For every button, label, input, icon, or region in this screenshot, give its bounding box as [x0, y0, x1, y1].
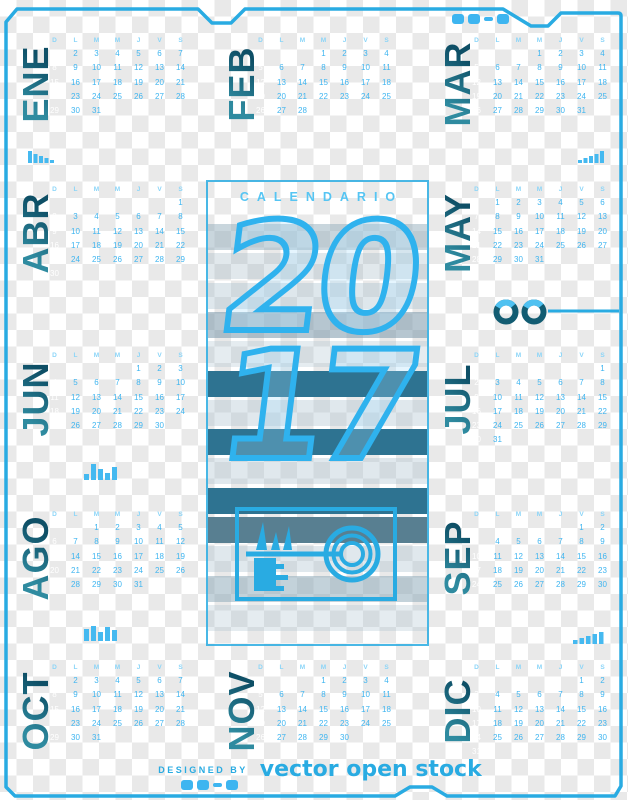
day-cell	[107, 362, 128, 376]
day-cell	[65, 433, 86, 447]
day-cell: 1	[313, 47, 334, 61]
day-cell: 18	[107, 76, 128, 90]
month-grid: DLMMJVS123456789101112131415161718192021…	[44, 661, 191, 760]
day-cell: 3	[170, 362, 191, 376]
day-cell	[170, 592, 191, 606]
day-cell: 21	[170, 703, 191, 717]
day-cell: 16	[592, 703, 613, 717]
day-cell: 19	[128, 703, 149, 717]
day-header: V	[149, 34, 170, 47]
day-cell: 28	[65, 578, 86, 592]
month-grid: DLMMJVS123456789101112131415161718192021…	[44, 34, 191, 133]
day-header: S	[592, 183, 613, 196]
day-cell: 21	[550, 564, 571, 578]
day-cell	[487, 267, 508, 281]
day-cell: 22	[44, 717, 65, 731]
day-cell: 18	[508, 405, 529, 419]
day-cell	[107, 118, 128, 132]
day-cell: 21	[466, 239, 487, 253]
day-cell: 18	[149, 550, 170, 564]
day-cell: 30	[44, 267, 65, 281]
day-cell: 6	[128, 210, 149, 224]
day-cell	[128, 196, 149, 210]
day-cell: 14	[292, 76, 313, 90]
day-cell: 2	[65, 674, 86, 688]
day-cell: 30	[107, 578, 128, 592]
day-cell: 12	[128, 688, 149, 702]
day-cell	[107, 196, 128, 210]
day-header: D	[44, 508, 65, 521]
day-cell: 1	[44, 674, 65, 688]
day-cell: 10	[86, 688, 107, 702]
day-header: D	[466, 183, 487, 196]
day-cell: 21	[571, 405, 592, 419]
day-cell: 4	[376, 47, 397, 61]
day-cell: 27	[128, 253, 149, 267]
day-cell: 15	[44, 703, 65, 717]
day-cell: 13	[529, 703, 550, 717]
day-cell: 15	[571, 550, 592, 564]
day-cell: 17	[86, 76, 107, 90]
day-cell	[44, 521, 65, 535]
day-cell: 3	[529, 196, 550, 210]
day-cell: 6	[271, 61, 292, 75]
day-cell	[571, 433, 592, 447]
tech-glyphs-icon	[452, 14, 509, 24]
day-cell: 6	[86, 376, 107, 390]
day-cell	[107, 267, 128, 281]
equalizer-bars-icon	[84, 464, 117, 480]
month-grid: DLMMJVS123456789101112131415161718192021…	[466, 349, 613, 448]
day-cell	[86, 267, 107, 281]
day-cell	[65, 267, 86, 281]
signal-bars-icon	[573, 632, 604, 644]
day-cell	[149, 433, 170, 447]
day-cell	[65, 196, 86, 210]
day-cell: 20	[149, 76, 170, 90]
day-cell	[571, 253, 592, 267]
calendar-center-panel: CALENDARIO 20 17	[206, 180, 429, 646]
day-cell: 29	[592, 419, 613, 433]
day-header: M	[508, 661, 529, 674]
day-cell	[170, 419, 191, 433]
day-cell	[529, 118, 550, 132]
day-cell: 27	[149, 90, 170, 104]
day-cell	[170, 578, 191, 592]
day-cell: 13	[271, 703, 292, 717]
glyph-square	[468, 14, 480, 24]
month-grid: DLMMJVS123456789101112131415161718192021…	[44, 183, 191, 282]
day-header: L	[487, 183, 508, 196]
day-cell: 28	[292, 731, 313, 745]
day-cell	[128, 731, 149, 745]
day-header: S	[170, 661, 191, 674]
day-cell: 6	[550, 376, 571, 390]
day-cell: 7	[149, 210, 170, 224]
day-cell: 21	[292, 717, 313, 731]
day-cell: 10	[355, 688, 376, 702]
day-cell	[508, 118, 529, 132]
day-header: D	[466, 661, 487, 674]
day-header: S	[376, 661, 397, 674]
day-cell: 10	[487, 391, 508, 405]
day-header: M	[86, 349, 107, 362]
day-cell	[508, 674, 529, 688]
day-cell: 26	[250, 731, 271, 745]
day-cell: 22	[592, 405, 613, 419]
brand-logo-text: vector open stock	[260, 757, 482, 782]
day-cell: 17	[487, 405, 508, 419]
day-header: J	[128, 508, 149, 521]
day-cell: 29	[170, 253, 191, 267]
day-cell: 9	[65, 688, 86, 702]
day-cell: 31	[86, 731, 107, 745]
day-cell: 28	[508, 104, 529, 118]
day-cell: 11	[487, 703, 508, 717]
day-cell: 27	[271, 104, 292, 118]
day-cell: 9	[149, 376, 170, 390]
panel-title: CALENDARIO	[208, 190, 427, 204]
day-cell	[529, 362, 550, 376]
day-cell: 18	[487, 564, 508, 578]
day-header: L	[487, 508, 508, 521]
day-header: M	[292, 34, 313, 47]
day-cell: 28	[107, 419, 128, 433]
day-header: V	[355, 34, 376, 47]
day-cell: 14	[550, 703, 571, 717]
day-cell	[466, 47, 487, 61]
day-cell: 4	[487, 535, 508, 549]
day-cell: 16	[44, 239, 65, 253]
day-cell	[466, 267, 487, 281]
day-cell: 26	[508, 731, 529, 745]
day-cell	[487, 521, 508, 535]
descending-bars-icon	[28, 151, 54, 163]
day-cell	[107, 104, 128, 118]
day-cell: 23	[107, 564, 128, 578]
day-cell	[550, 674, 571, 688]
day-cell: 23	[149, 405, 170, 419]
day-cell: 18	[107, 703, 128, 717]
day-cell: 28	[466, 253, 487, 267]
day-cell: 3	[355, 47, 376, 61]
day-cell: 19	[466, 90, 487, 104]
day-cell: 15	[592, 391, 613, 405]
day-cell	[508, 745, 529, 759]
day-cell	[571, 118, 592, 132]
day-cell	[271, 118, 292, 132]
day-cell: 25	[107, 717, 128, 731]
day-header: M	[107, 183, 128, 196]
day-cell: 14	[466, 225, 487, 239]
day-header: S	[592, 661, 613, 674]
day-cell	[271, 674, 292, 688]
day-cell: 3	[128, 521, 149, 535]
month-mar: MAR DLMMJVS12345678910111213141516171819…	[436, 32, 628, 144]
day-header: D	[44, 661, 65, 674]
day-cell: 13	[44, 550, 65, 564]
day-cell: 12	[529, 391, 550, 405]
day-cell: 22	[571, 564, 592, 578]
day-cell	[508, 47, 529, 61]
day-cell	[65, 592, 86, 606]
day-cell: 24	[466, 731, 487, 745]
day-cell: 20	[550, 405, 571, 419]
day-cell: 4	[487, 688, 508, 702]
day-cell	[487, 674, 508, 688]
day-cell: 17	[355, 703, 376, 717]
day-cell: 10	[466, 550, 487, 564]
day-cell: 22	[313, 717, 334, 731]
day-cell: 5	[65, 376, 86, 390]
day-cell: 16	[107, 550, 128, 564]
day-header: V	[571, 508, 592, 521]
month-grid: DLMMJVS123456789101112131415161718192021…	[466, 183, 613, 282]
day-cell: 10	[355, 61, 376, 75]
day-header: M	[292, 661, 313, 674]
day-cell	[149, 196, 170, 210]
day-cell	[170, 433, 191, 447]
day-header: M	[313, 661, 334, 674]
day-cell: 22	[313, 90, 334, 104]
day-cell: 20	[529, 717, 550, 731]
day-cell: 24	[65, 253, 86, 267]
month-ago: AGO DLMMJVS12345678910111213141516171819…	[14, 506, 210, 618]
day-cell: 7	[170, 47, 191, 61]
day-cell	[170, 267, 191, 281]
day-cell	[550, 118, 571, 132]
day-cell: 17	[355, 76, 376, 90]
day-header: V	[571, 349, 592, 362]
day-cell: 2	[334, 47, 355, 61]
day-cell: 12	[250, 76, 271, 90]
day-cell: 16	[466, 405, 487, 419]
day-header: D	[44, 349, 65, 362]
day-cell: 12	[128, 61, 149, 75]
day-cell: 19	[128, 76, 149, 90]
glyph-square	[497, 14, 509, 24]
day-cell: 1	[571, 521, 592, 535]
day-header: D	[466, 349, 487, 362]
day-cell: 14	[292, 703, 313, 717]
tech-glyphs-icon	[181, 780, 238, 790]
day-cell: 1	[592, 362, 613, 376]
day-cell: 16	[334, 76, 355, 90]
day-cell: 30	[149, 419, 170, 433]
day-cell: 11	[44, 391, 65, 405]
day-cell: 7	[571, 376, 592, 390]
day-cell: 2	[44, 210, 65, 224]
day-cell: 13	[86, 391, 107, 405]
day-header: V	[571, 661, 592, 674]
day-cell: 22	[86, 564, 107, 578]
day-cell: 3	[355, 674, 376, 688]
day-cell: 27	[550, 419, 571, 433]
day-cell: 8	[529, 61, 550, 75]
day-cell: 10	[170, 376, 191, 390]
day-cell: 20	[271, 90, 292, 104]
day-cell: 16	[334, 703, 355, 717]
day-cell	[487, 118, 508, 132]
day-header: J	[128, 349, 149, 362]
stripe	[208, 605, 427, 631]
day-cell: 5	[170, 521, 191, 535]
day-cell: 29	[529, 104, 550, 118]
day-cell: 11	[107, 61, 128, 75]
day-cell: 7	[107, 376, 128, 390]
day-cell	[466, 521, 487, 535]
day-cell: 11	[508, 391, 529, 405]
day-cell: 7	[292, 688, 313, 702]
day-cell	[128, 118, 149, 132]
day-cell	[376, 104, 397, 118]
day-cell	[508, 267, 529, 281]
day-cell: 9	[44, 225, 65, 239]
day-cell	[86, 118, 107, 132]
equalizer-bars-icon	[84, 626, 117, 641]
day-cell: 26	[250, 104, 271, 118]
month-sep: SEP DLMMJVS12345678910111213141516171819…	[436, 506, 628, 618]
day-cell: 29	[44, 104, 65, 118]
day-header: M	[529, 349, 550, 362]
day-cell: 28	[170, 90, 191, 104]
day-header: S	[170, 183, 191, 196]
day-cell: 11	[487, 550, 508, 564]
day-cell: 18	[86, 239, 107, 253]
day-cell: 7	[466, 210, 487, 224]
day-cell: 25	[107, 90, 128, 104]
day-cell: 15	[128, 391, 149, 405]
day-cell: 10	[466, 703, 487, 717]
day-header: L	[271, 34, 292, 47]
year-digits-bottom: 17	[199, 332, 436, 482]
day-cell: 7	[508, 61, 529, 75]
month-grid: DLMMJVS123456789101112131415161718192021…	[250, 661, 397, 760]
day-cell	[508, 433, 529, 447]
day-cell	[529, 521, 550, 535]
day-cell: 15	[487, 225, 508, 239]
day-header: L	[487, 34, 508, 47]
day-cell: 4	[550, 196, 571, 210]
day-cell: 31	[128, 578, 149, 592]
day-cell	[529, 745, 550, 759]
day-cell	[44, 196, 65, 210]
day-cell	[107, 433, 128, 447]
day-cell: 17	[529, 225, 550, 239]
day-header: J	[128, 661, 149, 674]
day-cell: 17	[86, 703, 107, 717]
day-cell: 18	[592, 76, 613, 90]
day-cell: 11	[107, 688, 128, 702]
day-header: S	[592, 508, 613, 521]
month-jun: JUN DLMMJVS12345678910111213141516171819…	[14, 347, 210, 459]
day-cell	[592, 118, 613, 132]
day-header: D	[44, 34, 65, 47]
day-cell: 23	[508, 239, 529, 253]
day-cell: 17	[466, 717, 487, 731]
day-cell	[107, 745, 128, 759]
day-cell	[292, 118, 313, 132]
day-header: M	[529, 508, 550, 521]
day-cell: 15	[313, 76, 334, 90]
day-cell	[65, 521, 86, 535]
day-cell: 2	[592, 674, 613, 688]
day-cell: 10	[128, 535, 149, 549]
day-cell: 19	[508, 717, 529, 731]
day-header: V	[355, 661, 376, 674]
day-cell	[149, 267, 170, 281]
day-header: S	[170, 349, 191, 362]
day-header: M	[508, 183, 529, 196]
day-cell	[592, 592, 613, 606]
day-header: M	[313, 34, 334, 47]
day-cell: 11	[149, 535, 170, 549]
day-cell: 19	[508, 564, 529, 578]
day-cell: 21	[107, 405, 128, 419]
key-icon	[234, 506, 400, 604]
glyph-square	[181, 780, 193, 790]
day-cell: 20	[271, 717, 292, 731]
day-header: M	[529, 661, 550, 674]
day-cell	[355, 731, 376, 745]
day-cell: 16	[149, 391, 170, 405]
day-cell: 14	[508, 76, 529, 90]
day-cell: 26	[529, 419, 550, 433]
day-header: S	[592, 349, 613, 362]
day-cell: 6	[44, 535, 65, 549]
day-cell: 27	[86, 419, 107, 433]
day-cell: 6	[529, 688, 550, 702]
day-cell: 24	[355, 90, 376, 104]
day-cell: 8	[487, 210, 508, 224]
day-cell: 21	[550, 717, 571, 731]
footer: DESIGNED BY vector open stock	[140, 757, 500, 782]
glyph-square	[226, 780, 238, 790]
day-cell	[571, 592, 592, 606]
day-cell: 30	[592, 731, 613, 745]
day-cell: 20	[149, 703, 170, 717]
day-header: J	[550, 349, 571, 362]
day-cell: 30	[65, 731, 86, 745]
day-cell: 21	[149, 239, 170, 253]
day-cell	[550, 267, 571, 281]
day-cell: 27	[487, 104, 508, 118]
day-cell: 12	[466, 76, 487, 90]
day-cell: 1	[529, 47, 550, 61]
day-cell	[170, 104, 191, 118]
day-cell: 16	[592, 550, 613, 564]
day-cell	[170, 731, 191, 745]
day-cell: 23	[592, 564, 613, 578]
day-cell: 20	[592, 225, 613, 239]
day-cell	[550, 745, 571, 759]
day-cell: 21	[508, 90, 529, 104]
day-cell: 14	[170, 688, 191, 702]
day-cell: 24	[529, 239, 550, 253]
day-cell: 25	[550, 239, 571, 253]
day-header: V	[149, 661, 170, 674]
day-cell: 5	[508, 688, 529, 702]
day-header: L	[271, 661, 292, 674]
day-cell	[355, 118, 376, 132]
day-header: M	[529, 183, 550, 196]
day-cell: 27	[149, 717, 170, 731]
day-header: L	[65, 661, 86, 674]
day-cell: 2	[592, 521, 613, 535]
day-cell: 26	[128, 90, 149, 104]
day-cell: 21	[170, 76, 191, 90]
day-cell	[313, 104, 334, 118]
